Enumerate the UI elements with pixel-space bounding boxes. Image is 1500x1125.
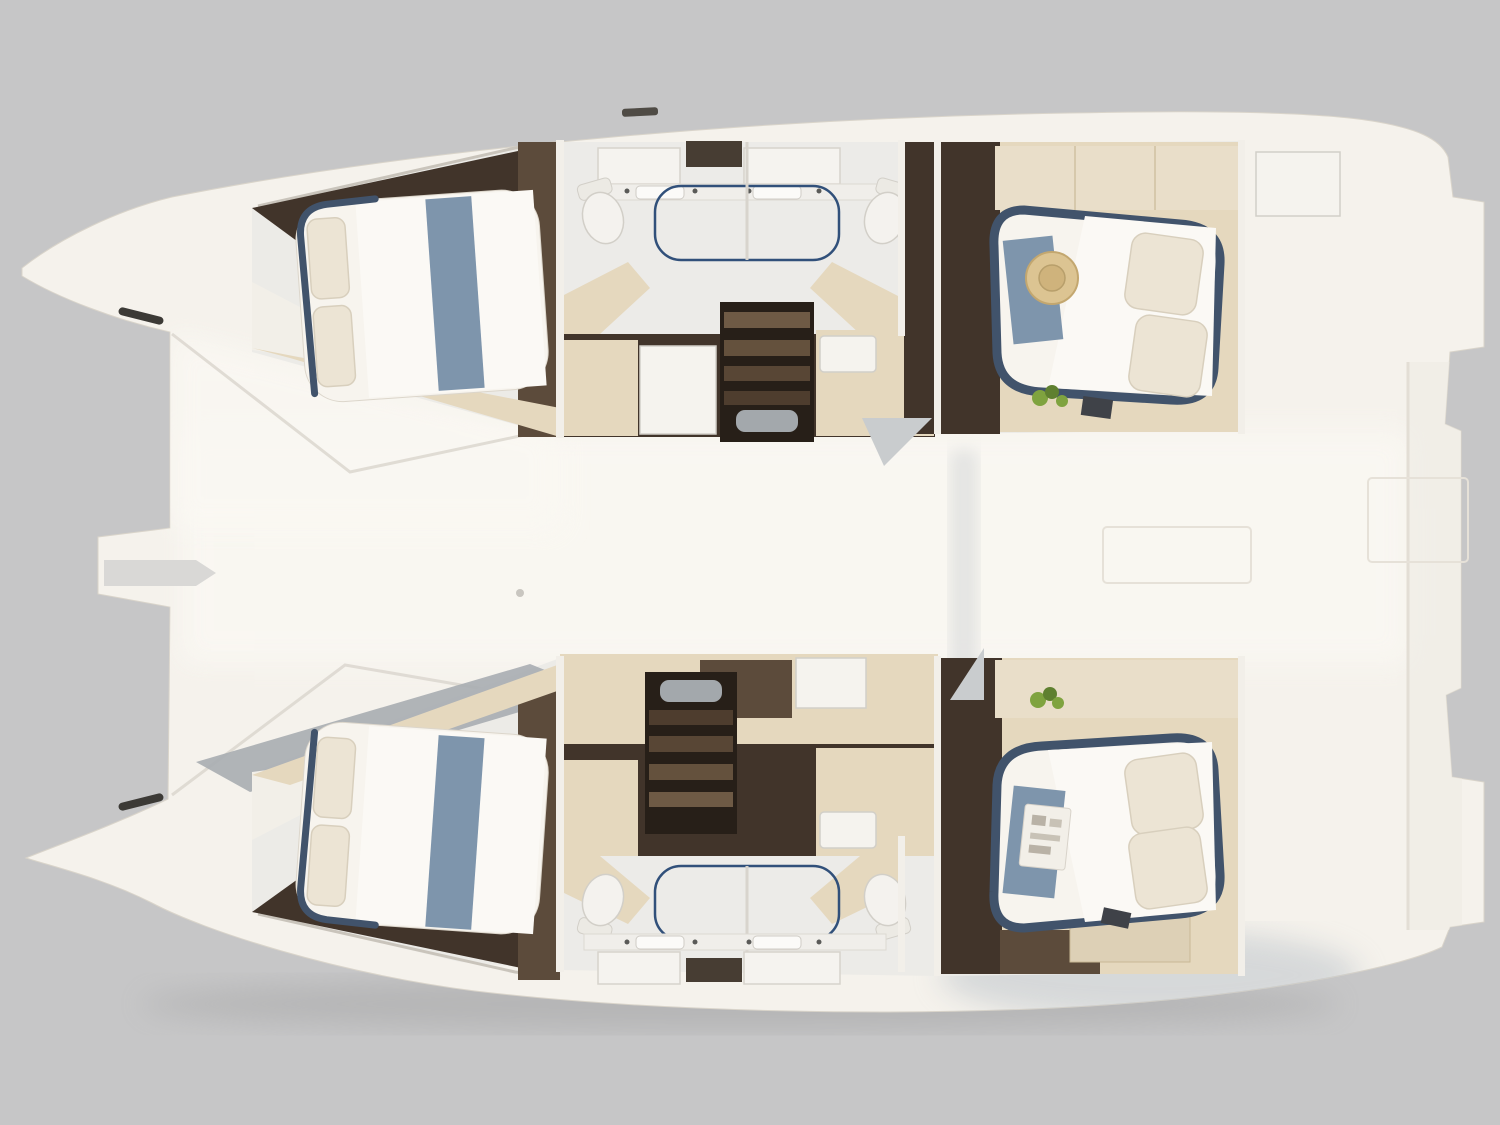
bulkhead (556, 656, 564, 972)
bulkhead (1238, 656, 1245, 976)
pillow (1127, 313, 1209, 398)
magazine (1019, 804, 1071, 870)
mirror-cabinet (598, 148, 680, 184)
pillow (307, 824, 350, 906)
faucet (747, 940, 752, 945)
transom-step-face (1408, 362, 1462, 930)
bulkhead (898, 836, 905, 972)
floorplan-canvas (0, 0, 1500, 1125)
stbd-stairs (645, 672, 737, 834)
dark-cabinet (686, 958, 742, 982)
catamaran-floorplan (0, 0, 1500, 1125)
stair-tread (724, 366, 810, 381)
sink (636, 936, 684, 949)
sink (753, 186, 801, 199)
port-forward-bed (293, 188, 550, 405)
bulkhead (898, 140, 905, 336)
faucet (817, 189, 822, 194)
faucet (625, 940, 630, 945)
pillow (1127, 825, 1209, 910)
counter-inset (820, 812, 876, 848)
sink (753, 936, 801, 949)
anchor-slot (104, 560, 216, 586)
stair-tread (649, 710, 733, 725)
stbd-bathroom (562, 856, 935, 984)
bulkhead (934, 656, 941, 976)
faucet (625, 189, 630, 194)
stair-mat (660, 680, 722, 702)
aft-cabinets (995, 146, 1240, 210)
magazine-print (1031, 815, 1046, 826)
stbd-aft-cabin (938, 658, 1240, 974)
corridor-cabinet (562, 340, 638, 436)
stair-tread (724, 312, 810, 328)
pillow (313, 305, 356, 387)
corridor-cabinet (562, 760, 638, 856)
mirror-cabinet (744, 148, 840, 184)
counter-inset (820, 336, 876, 372)
mirror-cabinet (598, 952, 680, 984)
faucet (693, 189, 698, 194)
stair-tread (649, 764, 733, 780)
deck-fitting (516, 589, 524, 597)
stbd-companionway (560, 654, 938, 858)
port-stairs (720, 302, 814, 442)
stair-tread (649, 792, 733, 807)
cabinet-module (796, 658, 866, 708)
faucet (693, 940, 698, 945)
bulkhead (1238, 140, 1245, 434)
stair-tread (724, 391, 810, 405)
mirror-cabinet (744, 952, 840, 984)
pillow (306, 217, 349, 299)
fridge-box (640, 346, 716, 434)
magazine-print (1049, 819, 1062, 828)
straw-hat (1026, 252, 1078, 304)
stair-tread (649, 736, 733, 752)
bulkhead (934, 140, 941, 434)
pillow (1123, 231, 1205, 316)
pillow (313, 737, 356, 819)
aft-cabinets (995, 660, 1240, 718)
dark-cabinet (686, 141, 742, 167)
port-aft-cabin (904, 142, 1240, 434)
pillow (1123, 751, 1205, 836)
aft-cabin-floor-wood (904, 142, 1000, 434)
cockpit-step-box (1256, 152, 1340, 216)
faucet (817, 940, 822, 945)
bulkhead (556, 140, 564, 438)
port-hull-interior (252, 140, 1340, 442)
stair-tread (724, 340, 810, 356)
stair-mat (736, 410, 798, 432)
stbd-forward-bed (293, 720, 550, 937)
